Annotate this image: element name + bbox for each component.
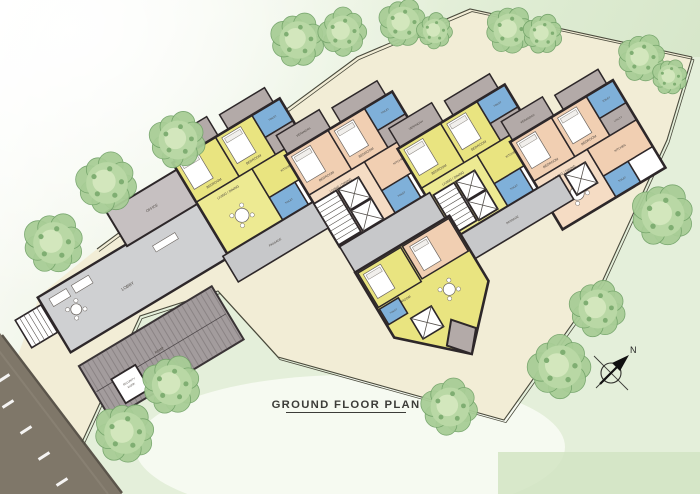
tree — [271, 13, 324, 66]
plan-title-text: GROUND FLOOR PLAN — [272, 399, 421, 411]
tree — [25, 214, 83, 272]
tree — [318, 7, 367, 56]
plan-title: GROUND FLOOR PLAN — [272, 399, 421, 413]
floor-plan-drawing: RAMPSECURITYKIOSKOFFICELOBBYVERANDAHBEDR… — [0, 0, 700, 494]
site-plan-canvas: RAMPSECURITYKIOSKOFFICELOBBYVERANDAHBEDR… — [0, 0, 700, 494]
north-label: N — [630, 345, 637, 355]
generated-plan-layers: RAMPSECURITYKIOSKOFFICELOBBYVERANDAHBEDR… — [0, 0, 700, 494]
tree — [96, 405, 154, 462]
